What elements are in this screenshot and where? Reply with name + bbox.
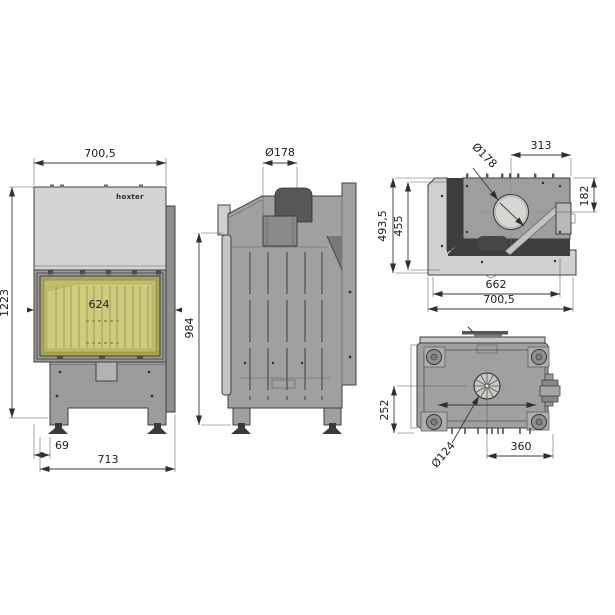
front-view: hoxter: [0, 147, 182, 472]
bottom-handle-bar2: [474, 335, 502, 338]
side-glass-edge: [222, 235, 231, 395]
front-side-panel: [166, 206, 175, 412]
svg-text:Ø178: Ø178: [469, 140, 499, 170]
bottom-hinge-pins: [452, 428, 530, 434]
svg-text:Ø124: Ø124: [429, 439, 458, 470]
svg-text:713: 713: [98, 453, 119, 466]
svg-text:700,5: 700,5: [84, 147, 116, 160]
svg-text:455: 455: [392, 216, 405, 237]
bottom-front-bar: [420, 337, 545, 343]
side-leg-back: [324, 408, 341, 425]
side-leg-front: [233, 408, 250, 425]
svg-text:984: 984: [183, 318, 196, 339]
bottom-handle-bar: [462, 331, 508, 335]
svg-text:360: 360: [511, 440, 532, 453]
bottom-view: 252 Ø124 360: [378, 327, 560, 470]
svg-text:252: 252: [378, 400, 391, 421]
top-view: Ø178 313 182 493,5 455: [376, 139, 597, 312]
svg-text:493,5: 493,5: [376, 210, 389, 242]
svg-text:662: 662: [486, 278, 507, 291]
svg-text:Ø178: Ø178: [265, 146, 295, 159]
top-connection-tab: [571, 214, 575, 223]
svg-text:69: 69: [55, 439, 69, 452]
front-top-panel: [34, 187, 166, 270]
side-flue-collar: [263, 216, 297, 246]
technical-drawing-canvas: hoxter: [0, 0, 615, 615]
side-view: Ø178 984: [183, 146, 356, 434]
svg-text:313: 313: [531, 139, 552, 152]
top-connection-box: [556, 203, 571, 234]
dim-front-leg-offset: 69: [34, 424, 69, 459]
top-flue-opening: [494, 195, 529, 230]
front-glass: 624: [40, 276, 160, 356]
top-mechanism: [477, 236, 508, 251]
svg-text:700,5: 700,5: [483, 293, 515, 306]
front-ash-door: [96, 362, 117, 381]
svg-text:1223: 1223: [0, 289, 11, 317]
dim-glass-width: 624: [89, 298, 110, 311]
bottom-left-strip: [411, 345, 417, 428]
brand-logo: hoxter: [116, 193, 144, 201]
dim-top-313: 313: [511, 139, 571, 180]
svg-text:182: 182: [578, 186, 591, 207]
dim-front-width-top: 700,5: [34, 147, 166, 185]
